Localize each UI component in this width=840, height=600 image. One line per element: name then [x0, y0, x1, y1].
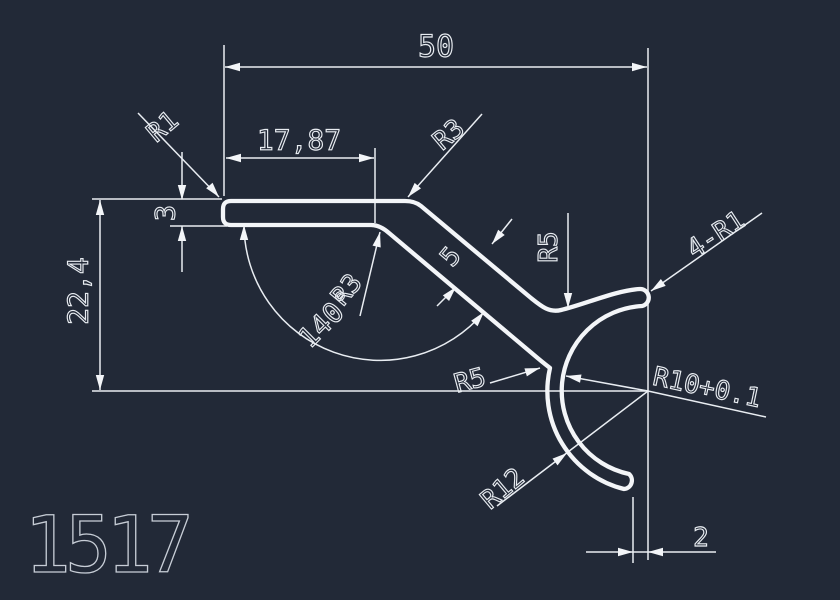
tip-fillets-4r1-label: 4-R1 [682, 205, 751, 264]
radius-r3-top-label: R3 [427, 113, 470, 156]
dim-arrow [240, 225, 248, 240]
radius-r5-top-label: R5 [534, 231, 564, 262]
dim-arrow [225, 63, 240, 71]
radius-r12-label: R12 [475, 462, 530, 515]
dim-arrow [648, 548, 663, 556]
dim-arrow [618, 548, 633, 556]
dimension-labels: 50 17,87 3 22,4 140° 5 2 R1 R3 R3 R5 R5 … [62, 30, 764, 554]
dim-5-label: 5 [434, 241, 467, 272]
dim-arrow [359, 154, 374, 162]
leader-lines [138, 113, 766, 506]
cad-viewport: 50 17,87 3 22,4 140° 5 2 R1 R3 R3 R5 R5 … [0, 0, 840, 600]
radius-r1-label: R1 [141, 105, 184, 148]
cad-drawing: 50 17,87 3 22,4 140° 5 2 R1 R3 R3 R5 R5 … [0, 0, 840, 600]
dim-arrow [565, 372, 581, 383]
dim-arrow [649, 279, 666, 294]
dim-50-label: 50 [418, 30, 454, 65]
dim-2-label: 2 [693, 523, 709, 553]
radius-r10-label: R10+0.1 [650, 362, 763, 414]
dim-arrow [373, 231, 385, 248]
dim-arrow [226, 154, 241, 162]
radius-r5-left-label: R5 [451, 362, 489, 399]
dim-arrow [632, 63, 647, 71]
dim-3-label: 3 [151, 205, 182, 221]
dim-arrow [524, 364, 541, 376]
profile-outline [223, 201, 649, 489]
dim-arrow [96, 200, 104, 215]
dim-arrow [96, 375, 104, 390]
profile-number: 1517 [24, 501, 189, 591]
dim-17-87-label: 17,87 [257, 124, 341, 157]
dim-arrow [178, 226, 186, 241]
dimension-arrows [96, 63, 666, 556]
dim-arrow [178, 185, 186, 200]
dim-22-4-label: 22,4 [62, 257, 95, 324]
